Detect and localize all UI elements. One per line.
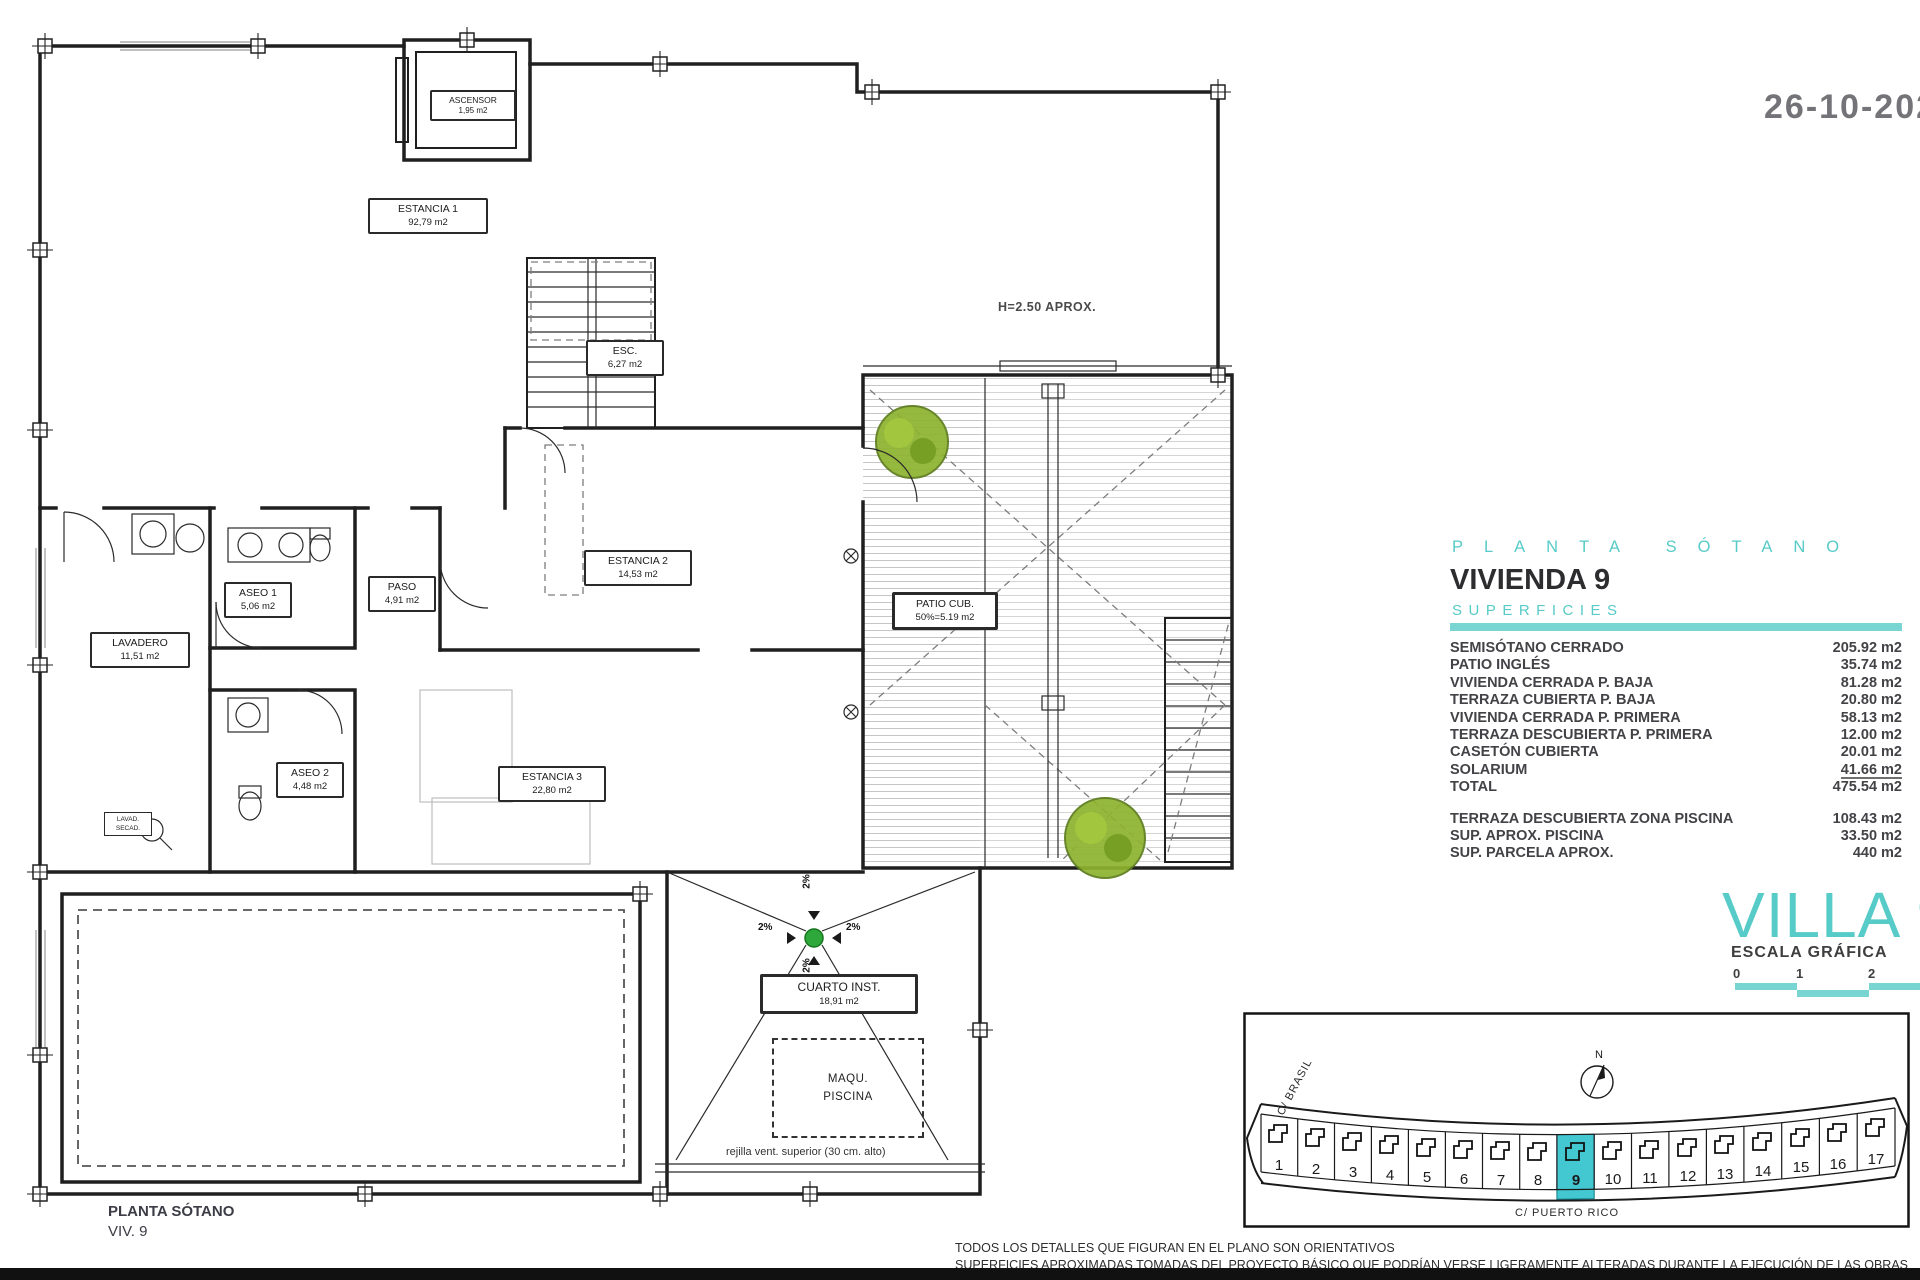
svg-text:11: 11 (1642, 1170, 1658, 1187)
door-arcs (64, 428, 917, 734)
room-name: ESTANCIA 2 (588, 555, 688, 569)
villa-title: VILLA 9 (1722, 878, 1920, 952)
vent-note: rejilla vent. superior (30 cm. alto) (726, 1146, 886, 1158)
superficies-heading: SUPERFICIES (1452, 602, 1624, 619)
svg-text:7: 7 (1497, 1172, 1505, 1189)
room-label-ascensor: ASCENSOR 1,95 m2 (430, 90, 516, 121)
scale-bar-segment (1797, 990, 1869, 997)
fixtures-group (132, 514, 330, 850)
table-row: SEMISÓTANO CERRADO205.92 m2 (1450, 640, 1902, 657)
svg-text:6: 6 (1460, 1171, 1468, 1188)
table-row-total: TOTAL475.54 m2 (1450, 779, 1902, 796)
floor-plan-drawing (0, 0, 1250, 1240)
room-name: ASCENSOR (434, 95, 512, 106)
svg-text:4: 4 (1386, 1167, 1394, 1184)
slope-label: 2% (802, 874, 813, 888)
room-area: 5,06 m2 (228, 601, 288, 613)
drain-point (805, 929, 823, 947)
table-row: TERRAZA DESCUBIERTA P. PRIMERA12.00 m2 (1450, 727, 1902, 744)
room-label-estancia-2: ESTANCIA 2 14,53 m2 (584, 550, 692, 586)
table-row: SOLARIUM41.66 m2 (1450, 762, 1902, 779)
room-area: 4,48 m2 (280, 781, 340, 793)
table-row: SUP. APROX. PISCINA33.50 m2 (1450, 828, 1902, 845)
staircase-patio (1165, 618, 1232, 862)
table-row: PATIO INGLÉS35.74 m2 (1450, 657, 1902, 674)
room-name: ESTANCIA 1 (372, 203, 484, 217)
svg-text:9: 9 (1572, 1172, 1580, 1189)
room-label-estancia-3: ESTANCIA 3 22,80 m2 (498, 766, 606, 802)
slope-label: 2% (802, 958, 813, 972)
survey-markers (27, 27, 1231, 1207)
street-label-puerto-rico: C/ PUERTO RICO (1515, 1207, 1619, 1219)
slope-label: 2% (758, 922, 772, 933)
table-row: VIVIENDA CERRADA P. BAJA81.28 m2 (1450, 675, 1902, 692)
svg-text:14: 14 (1755, 1163, 1772, 1180)
room-label-aseo-1: ASEO 1 5,06 m2 (224, 582, 292, 618)
height-note: H=2.50 APROX. (998, 300, 1096, 314)
svg-text:8: 8 (1534, 1172, 1542, 1189)
room-area: 14,53 m2 (588, 569, 688, 581)
laundry-units-label: LAVAD. SECAD. (104, 812, 152, 836)
room-name: LAVADERO (94, 637, 186, 651)
slope-label: 2% (846, 922, 860, 933)
areas-table: SEMISÓTANO CERRADO205.92 m2 PATIO INGLÉS… (1450, 640, 1902, 863)
bottom-black-bar (0, 1268, 1920, 1280)
room-area: 50%=5.19 m2 (897, 612, 993, 624)
windows-group (36, 42, 250, 1062)
scale-bar-segment (1735, 983, 1797, 990)
room-name: ASEO 1 (228, 587, 288, 601)
svg-text:12: 12 (1680, 1168, 1697, 1185)
svg-text:16: 16 (1830, 1156, 1847, 1173)
tree-icon (876, 406, 948, 478)
room-area: 1,95 m2 (434, 106, 512, 116)
room-label-patio-cub: PATIO CUB. 50%=5.19 m2 (892, 592, 998, 630)
room-label-lavadero: LAVADERO 11,51 m2 (90, 632, 190, 668)
room-area: 18,91 m2 (765, 996, 913, 1008)
room-area: 6,27 m2 (590, 359, 660, 371)
room-label-aseo-2: ASEO 2 4,48 m2 (276, 762, 344, 798)
room-area: 4,91 m2 (372, 595, 432, 607)
svg-text:15: 15 (1793, 1159, 1810, 1176)
svg-text:3: 3 (1349, 1164, 1357, 1181)
room-name: ESC. (590, 345, 660, 359)
room-name: PATIO CUB. (897, 598, 993, 612)
vivienda-title: VIVIENDA 9 (1450, 564, 1610, 597)
plan-date: 26-10-202 (1764, 88, 1920, 127)
tree-icon (1065, 798, 1145, 878)
room-name: PASO (372, 581, 432, 595)
room-name: ESTANCIA 3 (502, 771, 602, 785)
table-row: TERRAZA DESCUBIERTA ZONA PISCINA108.43 m… (1450, 811, 1902, 828)
room-label-escalera: ESC. 6,27 m2 (586, 340, 664, 376)
svg-text:2: 2 (1312, 1161, 1320, 1178)
reserve-area-dashed (78, 910, 624, 1166)
room-area: 92,79 m2 (372, 217, 484, 229)
room-name: MAQU. (828, 1070, 868, 1088)
svg-text:17: 17 (1868, 1151, 1885, 1168)
room-name: ASEO 2 (280, 767, 340, 781)
table-row: CASETÓN CUBIERTA20.01 m2 (1450, 744, 1902, 761)
plan-level-title: PLANTA SÓTANO (1452, 538, 1860, 557)
site-location-plan: N (1243, 1012, 1910, 1228)
room-name: CUARTO INST. (765, 980, 913, 996)
room-name: PISCINA (823, 1088, 873, 1106)
graphic-scale-label: ESCALA GRÁFICA (1731, 944, 1888, 962)
room-area: 22,80 m2 (502, 785, 602, 797)
room-label-maqu-piscina: MAQU. PISCINA (772, 1038, 924, 1138)
table-row: VIVIENDA CERRADA P. PRIMERA58.13 m2 (1450, 710, 1902, 727)
svg-text:N: N (1595, 1049, 1603, 1061)
room-label-paso: PASO 4,91 m2 (368, 576, 436, 612)
scale-bar-segment (1869, 983, 1920, 990)
table-row: TERRAZA CUBIERTA P. BAJA20.80 m2 (1450, 692, 1902, 709)
svg-text:1: 1 (1275, 1157, 1283, 1174)
blueprint-page: ESTANCIA 1 92,79 m2 ASCENSOR 1,95 m2 ESC… (0, 0, 1920, 1280)
room-label-estancia-1: ESTANCIA 1 92,79 m2 (368, 198, 488, 234)
svg-text:10: 10 (1605, 1171, 1622, 1188)
svg-text:13: 13 (1717, 1166, 1734, 1183)
teal-divider-bar (1450, 623, 1902, 631)
table-row: SUP. PARCELA APROX.440 m2 (1450, 845, 1902, 862)
room-label-cuarto-inst: CUARTO INST. 18,91 m2 (760, 974, 918, 1014)
room-area: 11,51 m2 (94, 651, 186, 663)
svg-text:5: 5 (1423, 1169, 1431, 1186)
